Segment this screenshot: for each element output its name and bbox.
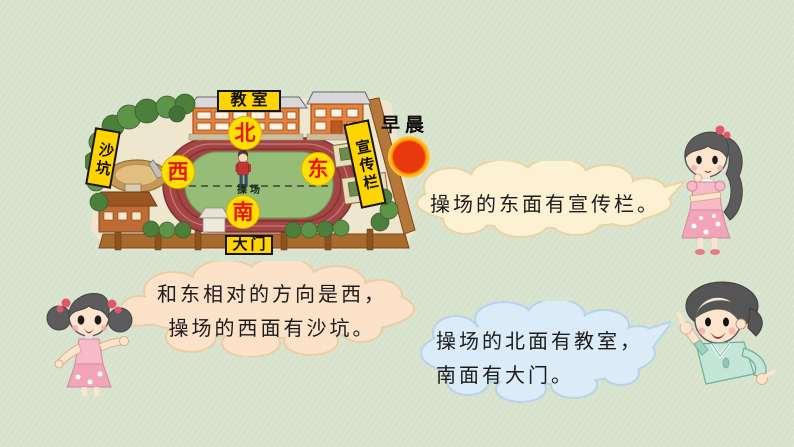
gate-label: 大门 (225, 235, 273, 255)
playground-label: 操场 (226, 181, 274, 196)
direction-south-badge: 南 (226, 195, 260, 229)
direction-north-badge: 北 (228, 116, 262, 150)
classroom-label: 教室 (217, 90, 281, 112)
lesson-slide: 教室 沙坑 宣传栏 大门 操场 北 西 东 南 早晨 (0, 0, 794, 447)
direction-east-badge: 东 (301, 152, 335, 186)
morning-label: 早晨 (381, 110, 429, 137)
speech-bubble-east: 操场的东面有宣传栏。 (406, 161, 686, 239)
cloud-shape (121, 261, 421, 357)
speech-bubble-west: 和东相对的方向是西， 操场的西面有沙坑。 (121, 261, 421, 357)
pointing-boy-character (650, 278, 790, 410)
bubble-east-text: 操场的东面有宣传栏。 (420, 188, 670, 217)
direction-west-badge: 西 (161, 155, 195, 189)
thinking-girl-character (668, 118, 753, 258)
speech-bubble-north-south: 操场的北面有教室， 南面有大门。 (416, 301, 671, 403)
waving-girl-character (46, 278, 141, 400)
bubble-west-line2: 操场的西面有沙坑。 (141, 312, 403, 341)
bubble-ns-line1: 操场的北面有教室， (436, 325, 643, 354)
bubble-ns-line2: 南面有大门。 (436, 359, 574, 388)
bubble-west-line1: 和东相对的方向是西， (141, 278, 403, 307)
gate-shed (199, 208, 229, 232)
